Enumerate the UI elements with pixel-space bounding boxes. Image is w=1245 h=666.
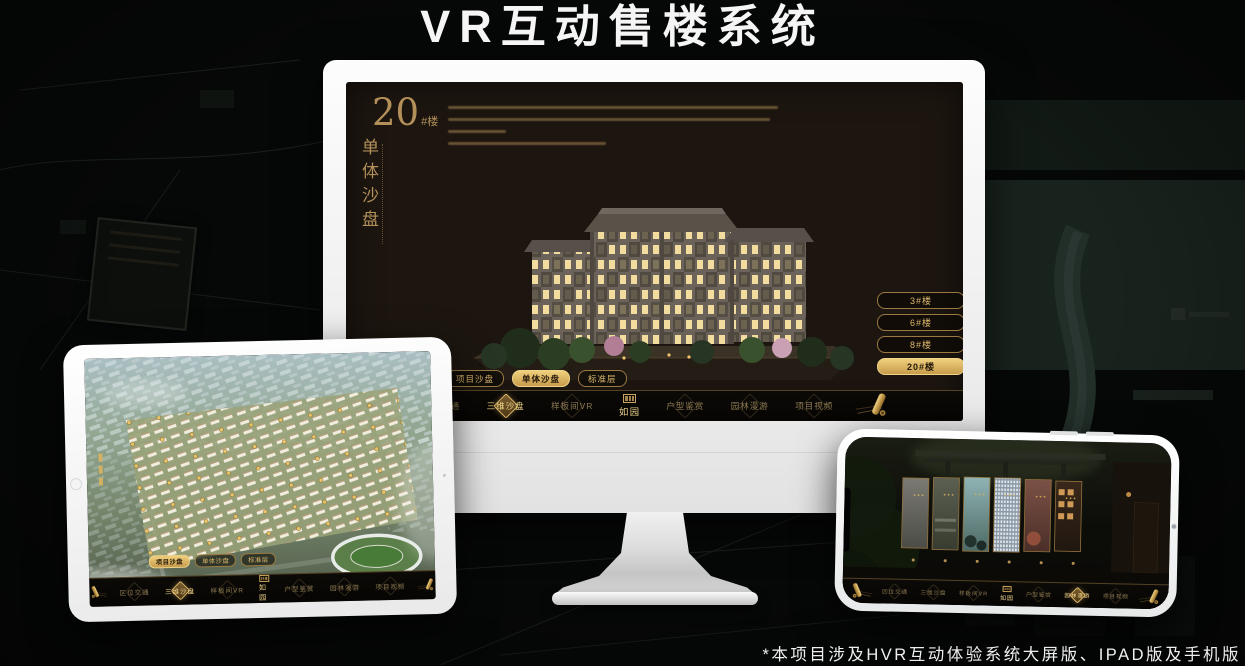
nav-item-showroom-vr[interactable]: 样板间VR <box>547 398 598 413</box>
building-selector: 3#楼 6#楼 8#楼 20#楼 <box>877 292 963 380</box>
project-logo-text: 如园 <box>1000 593 1014 602</box>
phone-camera-icon <box>1171 524 1175 528</box>
building-button-20[interactable]: 20#楼 <box>877 358 963 375</box>
description-text-lines <box>448 106 778 154</box>
building-button-6[interactable]: 6#楼 <box>877 314 963 331</box>
nav-item-floorplan-gallery[interactable]: 户型鉴赏 <box>281 581 318 594</box>
background-framed-plaque <box>87 217 197 331</box>
tab-standard-floor[interactable]: 标准层 <box>578 370 627 387</box>
scroll-ornament-icon <box>417 575 435 595</box>
aerial-masterplan-illustration[interactable] <box>84 351 436 607</box>
nav-item-project-video[interactable]: 项目视频 <box>791 398 838 413</box>
project-logo-text: 如园 <box>619 404 641 418</box>
phone-volume-button[interactable] <box>1050 431 1078 435</box>
project-logo-text: 如园 <box>259 583 270 603</box>
phone-frame: 区位交通 三维沙盘 样板间VR 如园 户型鉴赏 园林漫游 项目视频 <box>834 428 1180 617</box>
nav-item-garden-roam[interactable]: 园林漫游 <box>1062 590 1094 601</box>
nav-item-showroom-vr[interactable]: 样板间VR <box>207 583 247 596</box>
building-number-suffix: #楼 <box>421 116 438 128</box>
scroll-ornament-icon <box>1139 589 1162 606</box>
nav-item-garden-roam[interactable]: 园林漫游 <box>726 398 773 413</box>
nav-item-showroom-vr[interactable]: 样板间VR <box>956 588 991 599</box>
scroll-ornament-icon <box>855 393 891 419</box>
nav-item-project-video[interactable]: 项目视频 <box>372 579 409 592</box>
monitor-stand-base <box>552 592 758 605</box>
phone-screen: 区位交通 三维沙盘 样板间VR 如园 户型鉴赏 园林漫游 项目视频 <box>842 437 1171 610</box>
building-button-3[interactable]: 3#楼 <box>877 292 963 309</box>
project-logo[interactable]: 如园 <box>259 575 270 603</box>
building-model-illustration[interactable] <box>464 152 864 392</box>
view-tabs: 项目沙盘 单体沙盘 标准层 <box>446 370 627 387</box>
scroll-ornament-icon <box>89 583 107 603</box>
nav-item-3d-sandbox[interactable]: 三维沙盘 <box>918 587 950 598</box>
nav-item-3d-sandbox[interactable]: 三维沙盘 <box>482 398 529 413</box>
page-title: VR互动售楼系统 <box>0 2 1245 52</box>
promo-canvas: VR互动售楼系统 20#楼 单体沙盘 <box>0 0 1245 666</box>
tablet-tab-standard-floor[interactable]: 标准层 <box>241 553 276 567</box>
nav-item-project-video[interactable]: 项目视频 <box>1100 591 1132 602</box>
project-logo[interactable]: 如园 <box>619 394 641 418</box>
nav-item-3d-sandbox[interactable]: 三维沙盘 <box>162 584 199 597</box>
nav-item-floorplan-gallery[interactable]: 户型鉴赏 <box>662 398 709 413</box>
building-heading: 20#楼 <box>372 94 438 131</box>
nav-item-location-traffic[interactable]: 区位交通 <box>879 586 911 597</box>
tablet-tab-project-sandbox[interactable]: 项目沙盘 <box>149 555 190 569</box>
building-button-8[interactable]: 8#楼 <box>877 336 963 353</box>
building-number: 20 <box>372 91 419 134</box>
tablet-home-button[interactable] <box>70 478 82 490</box>
seal-icon <box>1003 586 1011 592</box>
footnote-caption: *本项目涉及HVR互动体验系统大屏版、IPAD版及手机版 <box>762 641 1241 665</box>
tab-project-sandbox[interactable]: 项目沙盘 <box>446 370 504 387</box>
tablet-camera-icon <box>443 474 446 477</box>
nav-item-floorplan-gallery[interactable]: 户型鉴赏 <box>1023 589 1055 600</box>
building-subtitle: 单体沙盘 <box>356 138 381 234</box>
heading-divider <box>382 144 383 244</box>
tablet-frame: 项目沙盘 单体沙盘 标准层 区位交通 三维沙盘 样板间VR 如园 户型鉴赏 园林… <box>63 337 457 623</box>
nav-item-location-traffic[interactable]: 区位交通 <box>116 585 153 598</box>
seal-icon <box>623 394 636 403</box>
scroll-ornament-icon <box>849 582 872 599</box>
tablet-tab-single-building-sandbox[interactable]: 单体沙盘 <box>195 554 236 568</box>
nav-item-garden-roam[interactable]: 园林漫游 <box>327 580 364 593</box>
phone-volume-button[interactable] <box>1086 432 1114 436</box>
tablet-screen: 项目沙盘 单体沙盘 标准层 区位交通 三维沙盘 样板间VR 如园 户型鉴赏 园林… <box>84 351 436 607</box>
project-logo[interactable]: 如园 <box>1000 586 1014 602</box>
tab-single-building-sandbox[interactable]: 单体沙盘 <box>512 370 570 387</box>
seal-icon <box>259 575 269 582</box>
